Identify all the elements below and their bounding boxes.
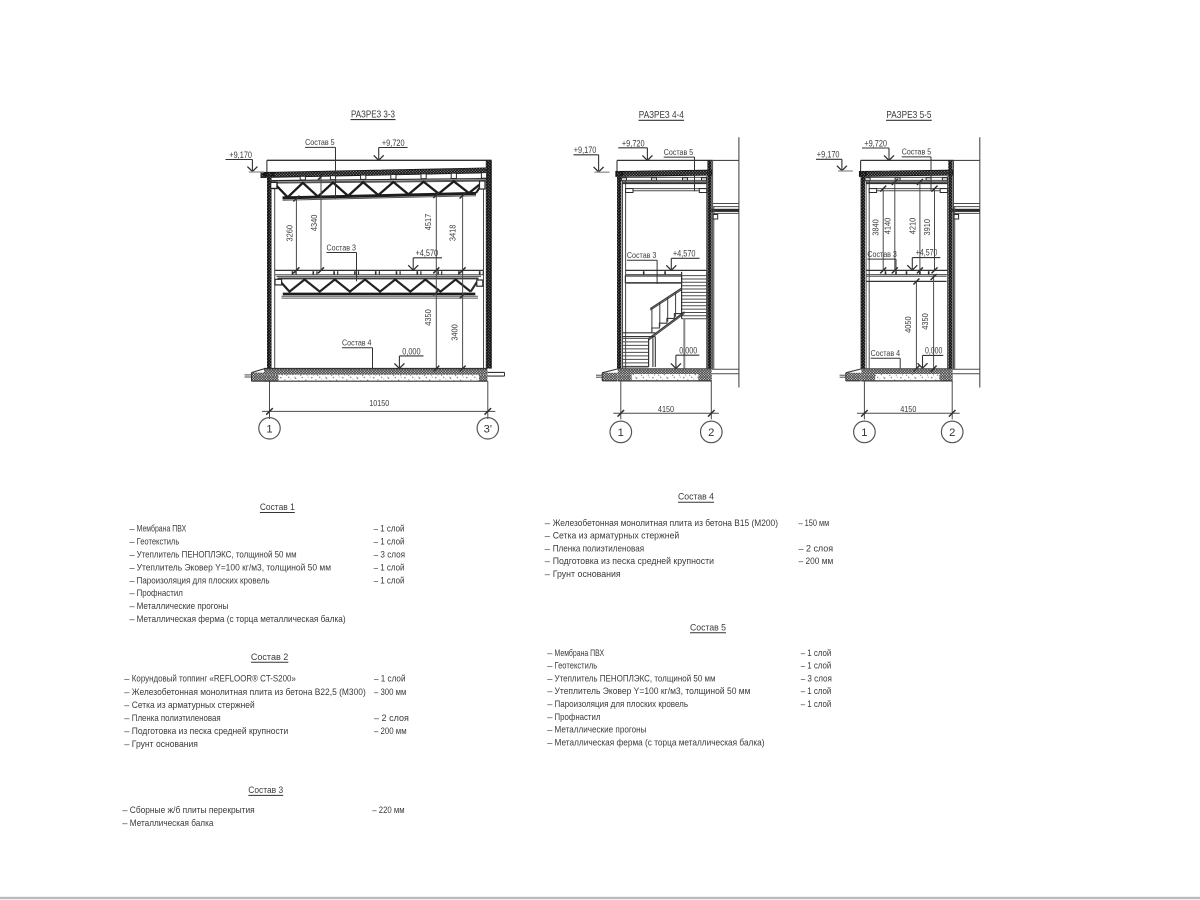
svg-text:Состав 1: Состав 1 xyxy=(260,502,295,513)
svg-text:+9,170: +9,170 xyxy=(817,149,840,159)
svg-text:Состав 5: Состав 5 xyxy=(690,622,726,633)
svg-text:1: 1 xyxy=(861,427,867,439)
svg-text:Состав 4: Состав 4 xyxy=(678,492,715,503)
svg-text:Геотекстиль: Геотекстиль xyxy=(555,661,598,671)
svg-text:РАЗРЕЗ 3-3: РАЗРЕЗ 3-3 xyxy=(351,109,395,120)
svg-text:4517: 4517 xyxy=(423,214,433,231)
svg-text:4050: 4050 xyxy=(903,316,913,333)
svg-text:–: – xyxy=(545,518,551,528)
svg-text:– 1 слой: – 1 слой xyxy=(801,661,832,671)
svg-text:– 3 слоя: – 3 слоя xyxy=(801,673,832,683)
svg-text:Металлические прогоны: Металлические прогоны xyxy=(137,601,229,611)
svg-text:2: 2 xyxy=(949,427,955,439)
svg-text:Грунт основания: Грунт основания xyxy=(132,739,198,749)
svg-text:Пароизоляция для плоских крове: Пароизоляция для плоских кровель xyxy=(137,575,270,585)
svg-text:Пленка полиэтиленовая: Пленка полиэтиленовая xyxy=(132,713,221,723)
svg-text:4150: 4150 xyxy=(900,404,916,414)
svg-text:Состав 5: Состав 5 xyxy=(664,147,694,157)
svg-text:–: – xyxy=(129,524,135,534)
svg-text:Состав 2: Состав 2 xyxy=(251,652,288,663)
svg-text:+9,720: +9,720 xyxy=(622,138,645,148)
svg-text:–: – xyxy=(547,712,553,722)
svg-text:– 200 мм: – 200 мм xyxy=(374,726,407,736)
svg-text:– 300 мм: – 300 мм xyxy=(374,687,406,697)
svg-text:– 1 слой: – 1 слой xyxy=(801,648,832,658)
svg-text:Состав 3: Состав 3 xyxy=(248,785,283,796)
svg-text:Металлическая ферма (с торца м: Металлическая ферма (с торца металлическ… xyxy=(555,737,765,747)
svg-text:+4,570: +4,570 xyxy=(416,248,439,258)
svg-text:–: – xyxy=(129,575,135,585)
svg-text:– 2 слоя: – 2 слоя xyxy=(799,543,834,553)
svg-text:–: – xyxy=(124,700,130,710)
svg-text:–: – xyxy=(124,713,130,723)
svg-text:– 1 слой: – 1 слой xyxy=(801,699,832,709)
svg-text:– 150 мм: – 150 мм xyxy=(799,518,830,528)
svg-text:–: – xyxy=(547,686,553,696)
svg-text:–: – xyxy=(547,661,553,671)
svg-text:Состав 3: Состав 3 xyxy=(327,242,357,252)
svg-text:+9,720: +9,720 xyxy=(382,138,405,148)
svg-text:Металлическая ферма (с торца м: Металлическая ферма (с торца металлическ… xyxy=(137,614,346,624)
svg-text:–: – xyxy=(545,531,551,541)
svg-text:0,000: 0,000 xyxy=(679,345,697,355)
svg-text:Металлические прогоны: Металлические прогоны xyxy=(555,725,647,735)
svg-text:–: – xyxy=(124,687,130,697)
svg-text:+4,570: +4,570 xyxy=(916,247,938,257)
svg-text:–: – xyxy=(547,673,553,683)
svg-text:Состав 3: Состав 3 xyxy=(627,250,657,260)
svg-text:3260: 3260 xyxy=(285,225,295,242)
svg-text:4210: 4210 xyxy=(907,218,917,235)
svg-text:Утеплитель ПЕНОПЛЭКС, толщиной: Утеплитель ПЕНОПЛЭКС, толщиной 50 мм xyxy=(137,550,297,560)
svg-text:0,000: 0,000 xyxy=(925,346,942,356)
svg-text:Пленка полиэтиленовая: Пленка полиэтиленовая xyxy=(553,543,644,553)
svg-text:–: – xyxy=(124,674,130,684)
svg-text:–: – xyxy=(129,562,135,572)
svg-text:– 1 слой: – 1 слой xyxy=(374,674,406,684)
svg-text:–: – xyxy=(547,648,553,658)
svg-text:–: – xyxy=(545,569,551,579)
svg-text:– 1 слой: – 1 слой xyxy=(801,686,832,696)
svg-text:– 1 слой: – 1 слой xyxy=(374,537,405,547)
svg-text:4350: 4350 xyxy=(920,313,930,330)
svg-text:Подготовка из песка средней кр: Подготовка из песка средней крупности xyxy=(132,726,288,736)
svg-text:– 1 слой: – 1 слой xyxy=(374,562,405,572)
svg-text:1: 1 xyxy=(266,423,272,435)
svg-text:Состав 4: Состав 4 xyxy=(871,348,901,358)
svg-text:Корундовый топпинг «REFLOOR® C: Корундовый топпинг «REFLOOR® CT-S200» xyxy=(132,674,296,684)
svg-text:2: 2 xyxy=(708,427,714,439)
svg-text:Утеплитель Эковер Y=100 кг/м3,: Утеплитель Эковер Y=100 кг/м3, толщиной … xyxy=(555,686,751,696)
svg-text:+9,170: +9,170 xyxy=(229,150,252,160)
svg-text:Железобетонная монолитная пли: Железобетонная монолитная плита из бетон… xyxy=(553,518,778,528)
svg-text:4350: 4350 xyxy=(423,309,433,326)
svg-text:– 3 слоя: – 3 слоя xyxy=(374,550,406,560)
svg-text:–: – xyxy=(129,601,135,611)
svg-text:Состав 5: Состав 5 xyxy=(902,147,932,157)
svg-text:–: – xyxy=(545,543,551,553)
svg-text:– 200 мм: – 200 мм xyxy=(799,556,834,566)
svg-text:Сетка из арматурных стержней: Сетка из арматурных стержней xyxy=(553,531,680,541)
svg-text:– 1 слой: – 1 слой xyxy=(374,575,405,585)
svg-text:Геотекстиль: Геотекстиль xyxy=(137,537,180,547)
svg-text:Состав 4: Состав 4 xyxy=(342,338,372,348)
svg-text:Металлическая балка: Металлическая балка xyxy=(130,818,214,828)
svg-text:–: – xyxy=(129,614,135,624)
svg-text:4150: 4150 xyxy=(658,404,674,414)
svg-text:Мембрана ПВХ: Мембрана ПВХ xyxy=(137,524,187,534)
svg-text:Грунт основания: Грунт основания xyxy=(553,569,621,579)
svg-text:Профнастил: Профнастил xyxy=(555,712,601,722)
svg-text:3418: 3418 xyxy=(448,224,458,241)
svg-text:–: – xyxy=(129,588,135,598)
svg-text:1: 1 xyxy=(618,427,624,439)
svg-text:–: – xyxy=(124,739,130,749)
svg-text:–: – xyxy=(122,805,128,815)
svg-text:Сетка из арматурных стержней: Сетка из арматурных стержней xyxy=(132,700,255,710)
svg-text:4140: 4140 xyxy=(882,218,892,235)
svg-text:–: – xyxy=(545,556,551,566)
svg-text:10150: 10150 xyxy=(369,398,389,408)
svg-text:Состав 3: Состав 3 xyxy=(867,249,897,259)
svg-text:Мембрана ПВХ: Мембрана ПВХ xyxy=(555,648,605,658)
svg-text:–: – xyxy=(122,818,128,828)
svg-text:Сборные ж/б плиты перекрытия: Сборные ж/б плиты перекрытия xyxy=(130,805,255,815)
svg-text:–: – xyxy=(547,699,553,709)
svg-text:–: – xyxy=(129,550,135,560)
svg-text:Профнастил: Профнастил xyxy=(137,588,183,598)
svg-text:Подготовка из песка средней кр: Подготовка из песка средней крупности xyxy=(553,556,714,566)
svg-text:+9,170: +9,170 xyxy=(574,145,597,155)
svg-text:– 2 слоя: – 2 слоя xyxy=(374,713,409,723)
svg-text:3910: 3910 xyxy=(922,219,932,236)
svg-text:4340: 4340 xyxy=(309,214,319,231)
svg-text:РАЗРЕЗ 5-5: РАЗРЕЗ 5-5 xyxy=(886,110,931,121)
svg-text:– 220 мм: – 220 мм xyxy=(372,805,404,815)
svg-text:Пароизоляция для плоских крове: Пароизоляция для плоских кровель xyxy=(555,699,689,709)
svg-text:–: – xyxy=(547,725,553,735)
svg-text:+4,570: +4,570 xyxy=(673,249,696,259)
svg-text:+9,720: +9,720 xyxy=(864,139,887,149)
svg-text:Утеплитель ПЕНОПЛЭКС, толщиной: Утеплитель ПЕНОПЛЭКС, толщиной 50 мм xyxy=(555,673,716,683)
svg-text:–: – xyxy=(547,737,553,747)
svg-text:Состав 5: Состав 5 xyxy=(305,137,335,147)
svg-text:3400: 3400 xyxy=(450,324,460,341)
svg-text:3840: 3840 xyxy=(871,219,881,236)
svg-text:3': 3' xyxy=(484,423,492,435)
svg-text:–: – xyxy=(124,726,130,736)
svg-text:–: – xyxy=(129,537,135,547)
svg-text:Железобетонная монолитная пли: Железобетонная монолитная плита из бетон… xyxy=(132,687,366,697)
svg-text:0,000: 0,000 xyxy=(402,346,420,356)
svg-text:Утеплитель Эковер Y=100 кг/м3,: Утеплитель Эковер Y=100 кг/м3, толщиной … xyxy=(137,562,331,572)
svg-text:РАЗРЕЗ 4-4: РАЗРЕЗ 4-4 xyxy=(639,110,684,121)
svg-text:– 1 слой: – 1 слой xyxy=(374,524,405,534)
